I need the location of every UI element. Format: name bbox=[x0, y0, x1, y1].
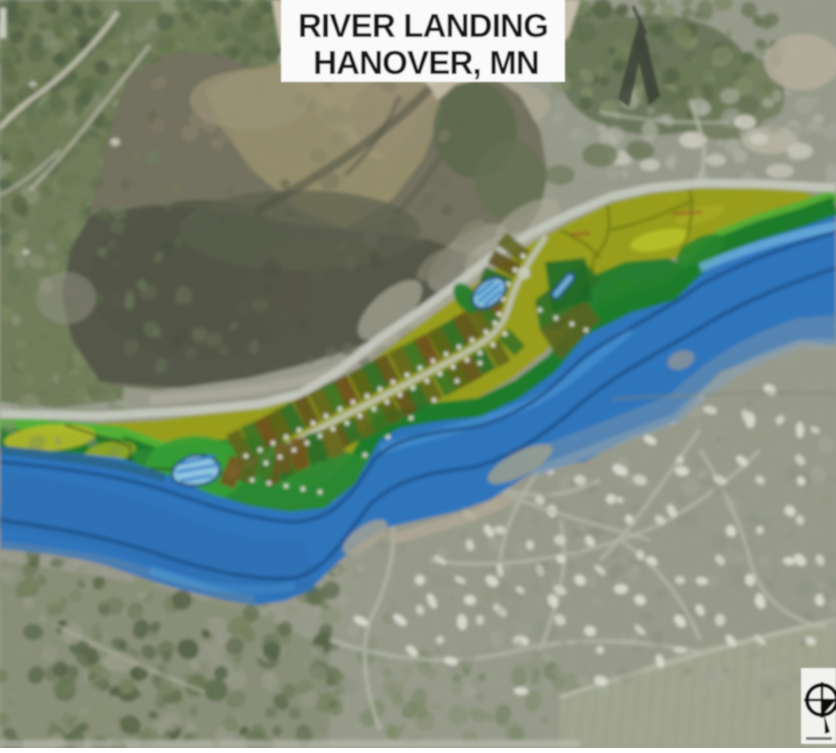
svg-text:HANOVER, MN: HANOVER, MN bbox=[313, 44, 539, 81]
svg-text:RIVER LANDING: RIVER LANDING bbox=[298, 7, 548, 44]
